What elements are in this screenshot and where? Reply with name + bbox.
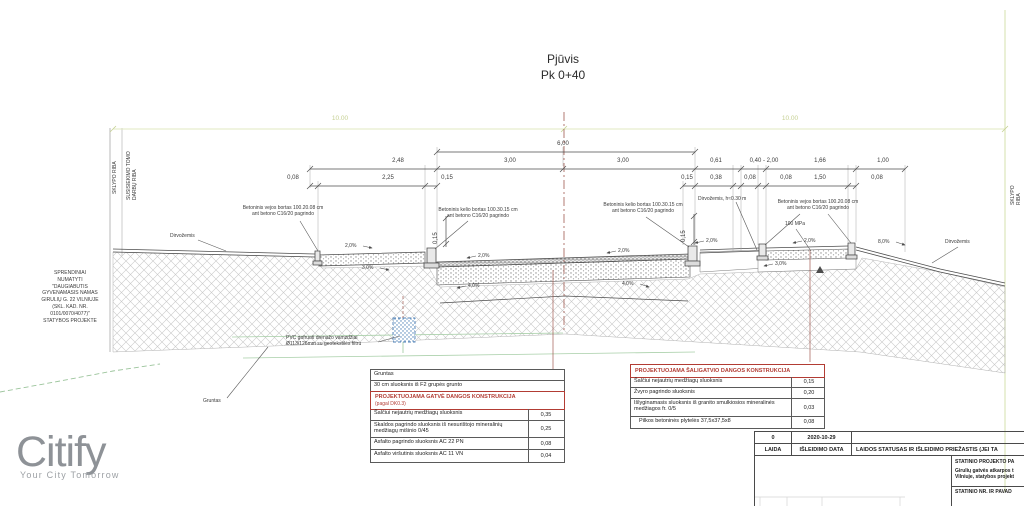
annotation-dirvozemis-left: Dirvožemis [170, 233, 195, 239]
slope-label-1: 3,0% [362, 265, 373, 271]
dim-upper-2: 3,00 [617, 158, 629, 164]
table-header-subtitle: (pagal DK0.3) [375, 401, 406, 407]
dim-overall-right: 10.00 [782, 115, 798, 122]
layer-label: Asfalto pagrindo sluoksnis AC 22 PN [374, 439, 524, 445]
dim-lower-2: 0,15 [441, 175, 453, 181]
annotation-pvc-drain: PVC gofruoti drenažo vamzdžiai Ø113/126m… [286, 335, 361, 347]
drawing-title: Pjūvis [547, 52, 579, 66]
slope-label-9: 4,0% [622, 281, 633, 287]
annotation-dirvozemis-right: Dirvožemis [945, 239, 970, 245]
issue-date-label: IŠLEIDIMO DATA [792, 444, 852, 456]
layer-label: Asfalto viršutinis sluoksnis AC 11 VN [374, 451, 524, 457]
table-row: Išlyginamasis sluoksnis iš granito smulk… [631, 399, 824, 417]
project-name-line2: Vilniuje, statybos projekt [955, 474, 1014, 480]
dim-upper-4: 0,40 - 2,00 [750, 158, 779, 164]
dim-upper-6: 1,00 [877, 158, 889, 164]
layer-label: Išlyginamasis sluoksnis iš granito smulk… [634, 400, 784, 412]
drawing-sheet: Pjūvis Pk 0+40 SKLYPO RIBA SUSISIEKIMO T… [0, 0, 1024, 506]
dim-lower-7: 1,50 [814, 175, 826, 181]
layer-label: Pilkos betoninės plytelės 37,5x37,5x8 [639, 418, 784, 424]
dim-lower-1: 2,25 [382, 175, 394, 181]
dim-upper-3: 0,61 [710, 158, 722, 164]
table-row: Skaldos pagrindo sluoksnis iš nesurištoj… [371, 421, 564, 438]
status-cell-empty [852, 432, 1024, 444]
table-cell: Gruntas [374, 371, 562, 377]
sidewalk-pavement-table: PROJEKTUOJAMA ŠALIGATVIO DANGOS KONSTRUK… [630, 364, 825, 429]
annotation-bearing-capacity: 100 MPa [785, 221, 805, 227]
layer-value: 0,15 [794, 379, 824, 385]
dim-kerb-left: 0,15 [433, 232, 439, 244]
annotation-kelio-bortas-right: Betoninis kelio bortas 100.30.15 cm ant … [603, 202, 682, 214]
slope-label-4: 2,0% [706, 238, 717, 244]
dim-overall-left: 10.00 [332, 115, 348, 122]
annotation-kelio-bortas-left: Betoninis kelio bortas 100.30.15 cm ant … [438, 207, 517, 219]
dim-lower-3: 0,15 [681, 175, 693, 181]
slope-label-0: 2,0% [345, 243, 356, 249]
dim-upper-1: 3,00 [504, 158, 516, 164]
layer-value: 0,04 [531, 453, 561, 459]
table-row: Gruntas [371, 370, 564, 381]
slope-label-2: 2,0% [478, 253, 489, 259]
slope-label-6: 8,0% [878, 239, 889, 245]
status-label: LAIDOS STATUSAS IR IŠLEIDIMO PRIEŽASTIS … [852, 444, 1024, 456]
layer-label: Skaldos pagrindo sluoksnis iš nesurištoj… [374, 422, 524, 434]
layer-label: Žvyro pagrindo sluoksnis [634, 389, 784, 395]
table-row: Žvyro pagrindo sluoksnis 0,20 [631, 388, 824, 399]
layer-value: 0,03 [794, 405, 824, 411]
boundary-label-left-inner: SUSISIEKIMO TOMO DARBŲ RIBA [126, 151, 138, 200]
laida-label: LAIDA [755, 444, 792, 456]
dim-upper-5: 1,66 [814, 158, 826, 164]
layer-value: 0,25 [531, 426, 561, 432]
slope-label-7: 3,0% [775, 261, 786, 267]
project-stage-label: STATINIO PROJEKTO PA [955, 459, 1014, 465]
table-header-title: PROJEKTUOJAMA GATVĖ DANGOS KONSTRUKCIJA [375, 394, 516, 400]
revision-number: 0 [755, 432, 792, 444]
dim-kerb-right: 0,15 [681, 230, 687, 242]
annotation-gruntas: Gruntas [203, 398, 221, 404]
layer-value: 0,08 [794, 419, 824, 425]
slope-label-5: 2,0% [804, 238, 815, 244]
table-header-sidewalk: PROJEKTUOJAMA ŠALIGATVIO DANGOS KONSTRUK… [630, 364, 825, 378]
table-row: Asfalto pagrindo sluoksnis AC 22 PN 0,08 [371, 438, 564, 450]
table-row: Pilkos betoninės plytelės 37,5x37,5x8 0,… [631, 417, 824, 428]
drain-symbol [393, 318, 415, 342]
boundary-label-left-outer: SKLYPO RIBA [112, 161, 118, 194]
annotation-project-note: SPRENDINIAI NUMATYTI "DAUGIABUTIS GYVENA… [18, 270, 122, 324]
building-number-label: STATINIO NR. IR PAVAD [955, 489, 1012, 495]
layer-label: Šalčiui nejautrių medžiagų sluoksnis [634, 378, 784, 384]
layer-value: 0,35 [531, 412, 561, 418]
title-block-rule [951, 486, 1024, 487]
boundary-label-right: SKLYPO RIBA [1010, 185, 1022, 205]
layer-value: 0,20 [794, 390, 824, 396]
dim-lower-6: 0,08 [780, 175, 792, 181]
logo-name: Citify [16, 430, 120, 474]
dim-lower-4: 0,38 [710, 175, 722, 181]
table-row: Šalčiui nejautrių medžiagų sluoksnis 0,1… [631, 377, 824, 388]
annotation-dirvozemis-depth: Dirvožemis, h≈0.30 m [698, 196, 746, 202]
drawing-subtitle: Pk 0+40 [541, 68, 585, 82]
dim-lower-8: 0,08 [871, 175, 883, 181]
issue-date: 2020-10-29 [792, 432, 852, 444]
company-logo: Citify Your City Tomorrow [16, 430, 120, 480]
dim-total: 6,00 [557, 141, 569, 147]
title-block-divider [951, 456, 952, 506]
overall-dim-line [110, 126, 1008, 132]
table-row: Asfalto viršutinis sluoksnis AC 11 VN 0,… [371, 450, 564, 462]
dim-upper-0: 2,48 [392, 158, 404, 164]
annotation-vejos-bortas-left: Betoninis vejos bortas 100.20.08 cm ant … [243, 205, 324, 217]
dim-lower-5: 0,08 [744, 175, 756, 181]
layer-value: 0,08 [531, 441, 561, 447]
slope-label-8: 4,0% [468, 283, 479, 289]
table-row: Šalčiui nejautrių medžiagų sluoksnis 0,3… [371, 409, 564, 421]
street-pavement-table: Gruntas 30 cm sluoksnis iš F2 grupės gru… [370, 369, 565, 463]
annotation-vejos-bortas-right: Betoninis vejos bortas 100.20.08 cm ant … [778, 199, 859, 211]
table-header-title: PROJEKTUOJAMA ŠALIGATVIO DANGOS KONSTRUK… [635, 368, 790, 374]
layer-label: Šalčiui nejautrių medžiagų sluoksnis [374, 410, 524, 416]
dim-lower-0: 0,08 [287, 175, 299, 181]
table-header-street: PROJEKTUOJAMA GATVĖ DANGOS KONSTRUKCIJA … [370, 391, 565, 410]
slope-label-3: 2,0% [618, 248, 629, 254]
title-block: 0 2020-10-29 LAIDA IŠLEIDIMO DATA LAIDOS… [754, 431, 1024, 506]
table-cell: 30 cm sluoksnis iš F2 grupės grunto [374, 382, 562, 388]
logo-tagline: Your City Tomorrow [20, 470, 120, 480]
